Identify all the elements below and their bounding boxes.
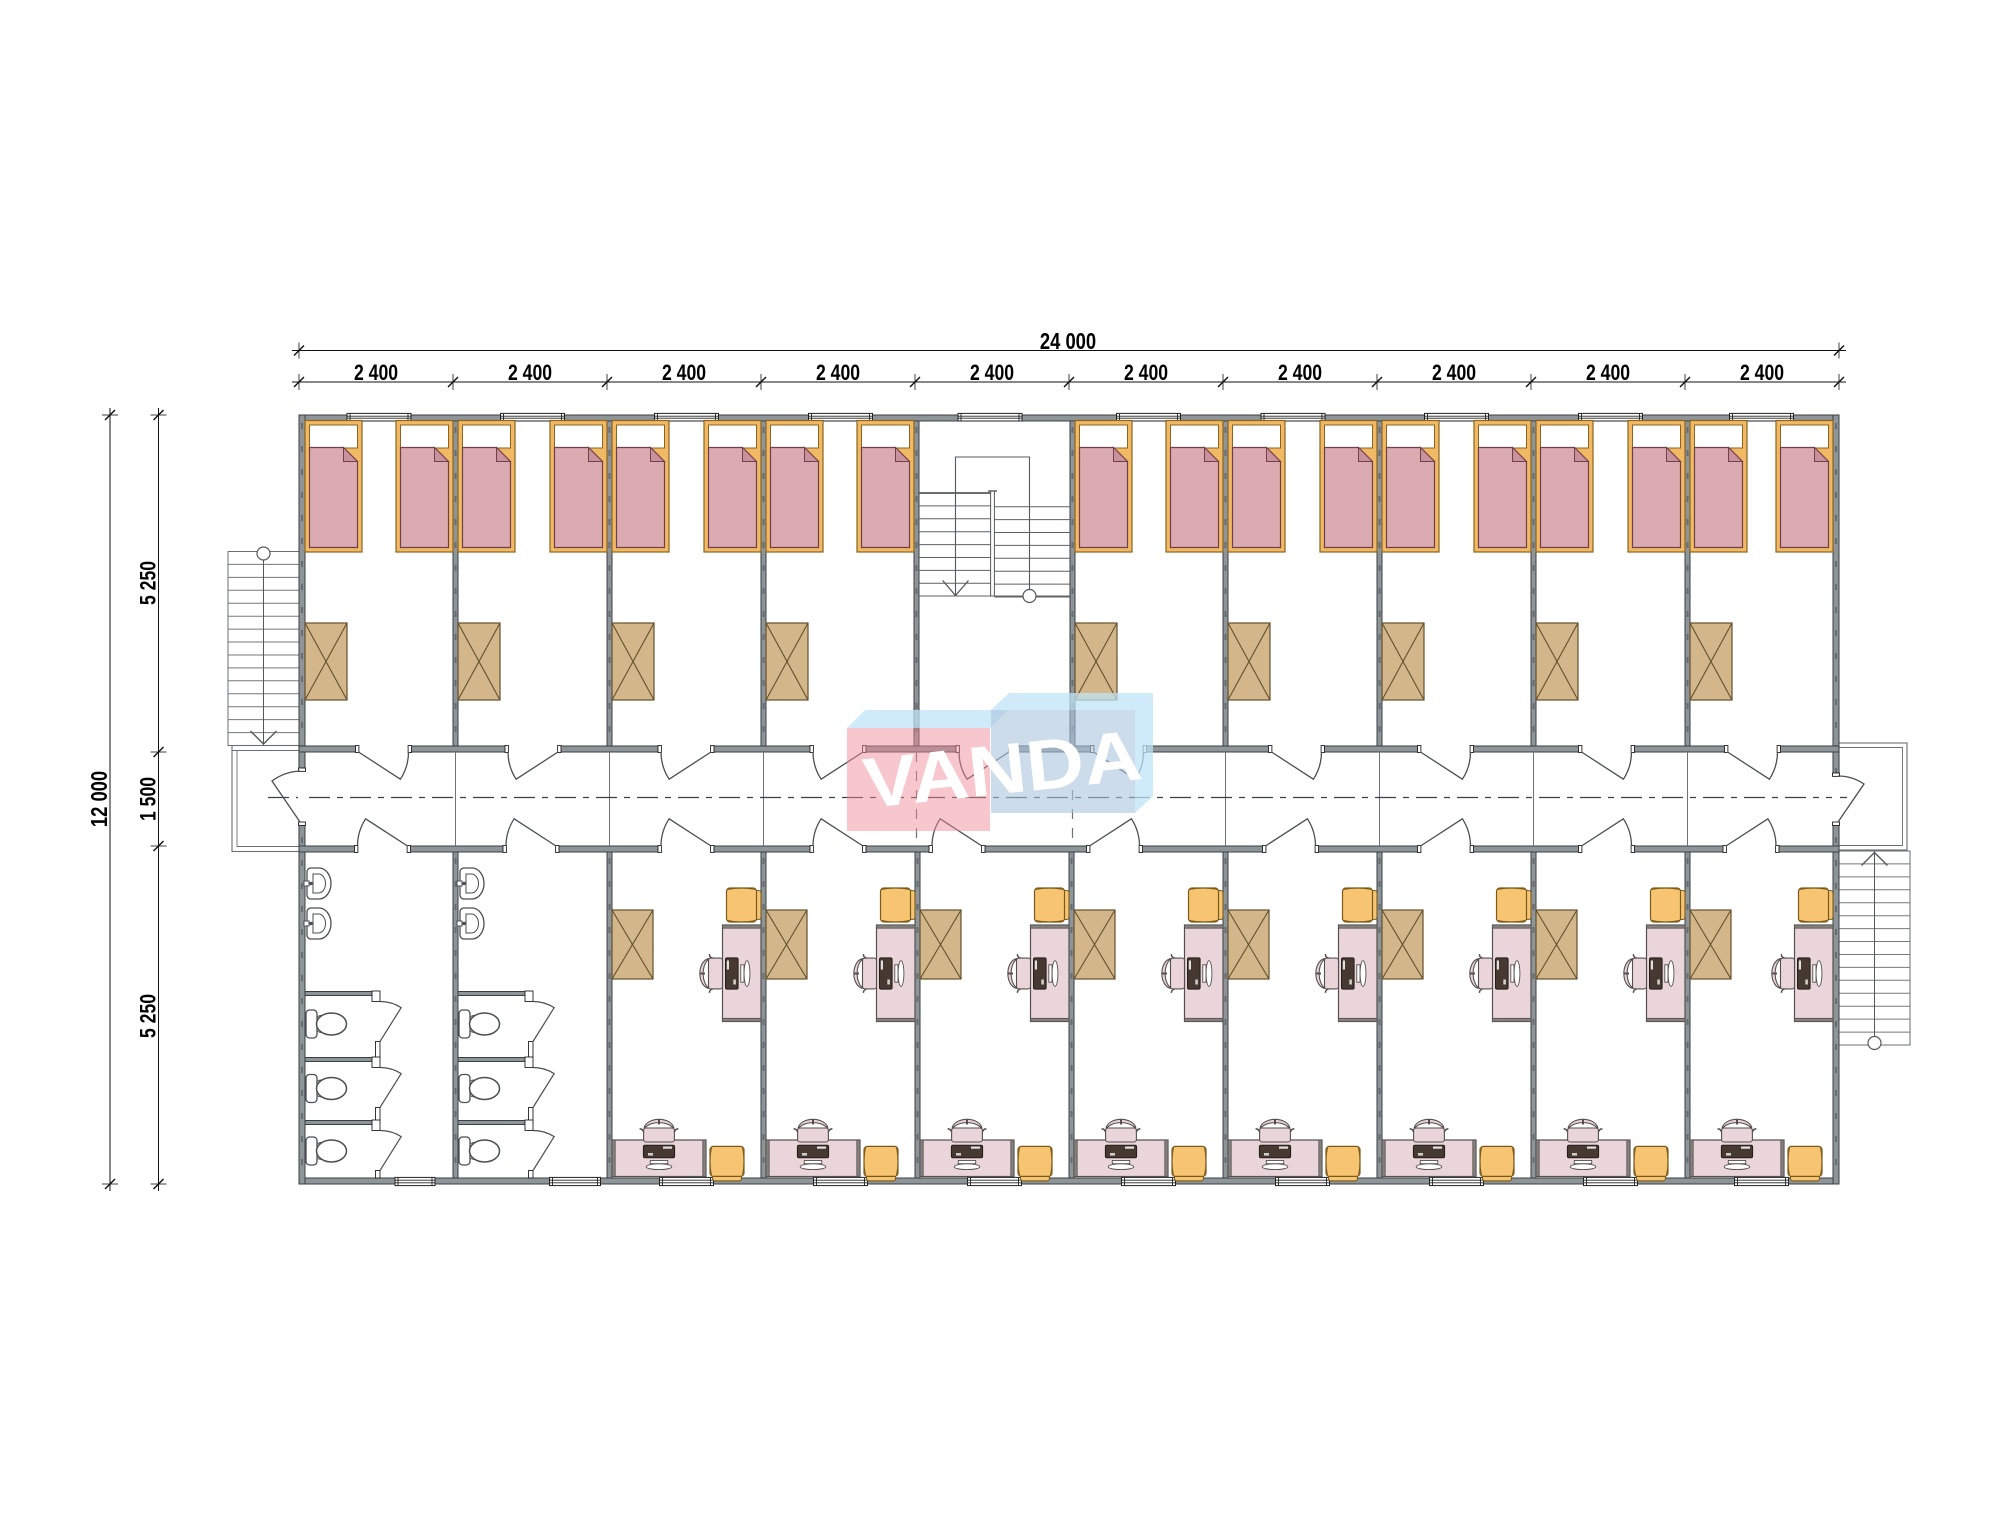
svg-text:2 400: 2 400	[970, 361, 1014, 385]
svg-text:1 500: 1 500	[137, 777, 161, 821]
svg-text:2 400: 2 400	[1278, 361, 1322, 385]
svg-text:2 400: 2 400	[1740, 361, 1784, 385]
svg-text:2 400: 2 400	[1432, 361, 1476, 385]
svg-text:2 400: 2 400	[1586, 361, 1630, 385]
svg-text:2 400: 2 400	[354, 361, 398, 385]
svg-text:2 400: 2 400	[1124, 361, 1168, 385]
svg-text:24 000: 24 000	[1040, 329, 1096, 354]
svg-text:2 400: 2 400	[662, 361, 706, 385]
svg-text:2 400: 2 400	[508, 361, 552, 385]
svg-text:5 250: 5 250	[137, 561, 161, 605]
svg-text:12 000: 12 000	[87, 771, 112, 827]
svg-text:5 250: 5 250	[137, 994, 161, 1038]
svg-text:2 400: 2 400	[816, 361, 860, 385]
